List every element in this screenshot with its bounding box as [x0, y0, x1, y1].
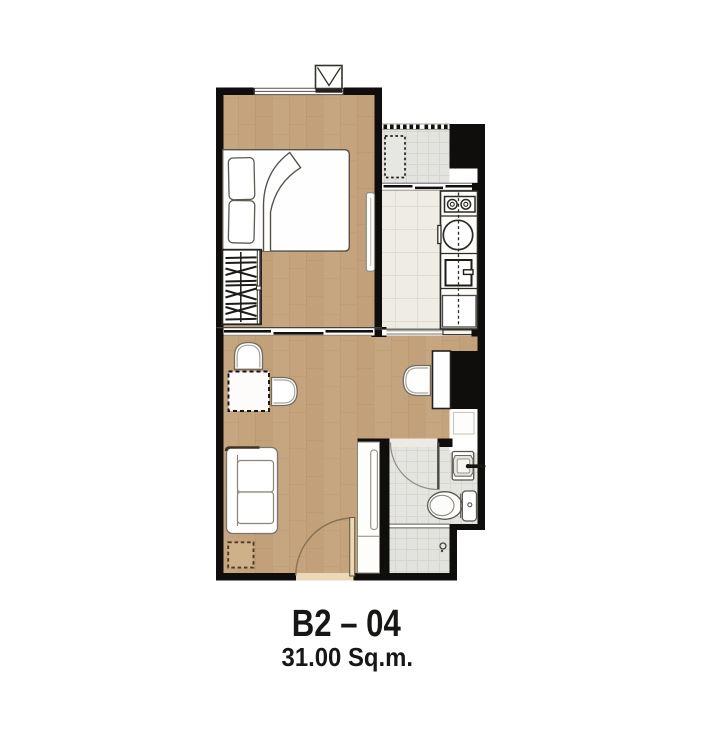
svg-text:31.00 Sq.m.: 31.00 Sq.m.: [282, 642, 414, 672]
svg-text:B2 – 04: B2 – 04: [292, 603, 401, 645]
